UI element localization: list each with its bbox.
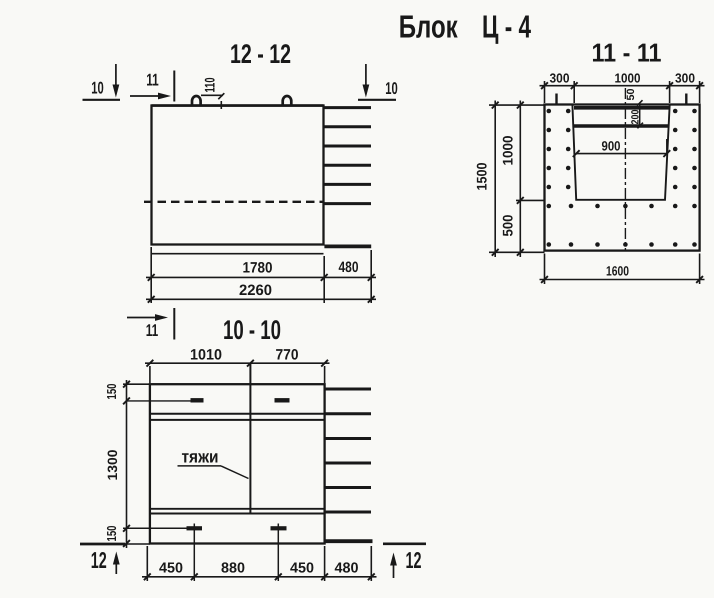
svg-text:500: 500 — [499, 214, 515, 236]
svg-text:10: 10 — [91, 79, 104, 98]
svg-text:2260: 2260 — [239, 282, 272, 299]
svg-text:1600: 1600 — [606, 264, 629, 279]
svg-text:110: 110 — [202, 77, 218, 92]
svg-text:1010: 1010 — [190, 347, 222, 364]
svg-text:770: 770 — [276, 347, 299, 364]
svg-text:тяжи: тяжи — [182, 447, 219, 467]
svg-text:900: 900 — [602, 139, 621, 154]
svg-text:11: 11 — [146, 71, 159, 90]
svg-text:150: 150 — [104, 384, 119, 400]
svg-text:300: 300 — [550, 71, 570, 86]
svg-text:12: 12 — [91, 547, 107, 573]
svg-text:1300: 1300 — [105, 450, 120, 481]
svg-text:200: 200 — [630, 109, 642, 124]
svg-text:450: 450 — [290, 561, 314, 577]
svg-text:150: 150 — [104, 526, 119, 542]
svg-text:11: 11 — [146, 321, 159, 340]
svg-text:1780: 1780 — [243, 260, 273, 277]
svg-text:10 - 10: 10 - 10 — [223, 315, 281, 345]
svg-text:1500: 1500 — [474, 162, 490, 190]
svg-text:11 - 11: 11 - 11 — [592, 38, 662, 68]
svg-text:1000: 1000 — [499, 135, 515, 165]
svg-text:300: 300 — [675, 71, 695, 86]
svg-text:10: 10 — [385, 79, 398, 98]
svg-text:12 - 12: 12 - 12 — [230, 39, 291, 69]
svg-text:50: 50 — [625, 88, 637, 100]
svg-text:1000: 1000 — [615, 71, 641, 86]
svg-text:12: 12 — [406, 547, 422, 573]
svg-text:880: 880 — [221, 561, 245, 577]
svg-text:Ц - 4: Ц - 4 — [482, 9, 531, 45]
svg-text:480: 480 — [335, 561, 359, 577]
svg-text:450: 450 — [159, 561, 183, 577]
svg-text:Блок: Блок — [399, 9, 459, 45]
svg-text:480: 480 — [339, 259, 359, 276]
